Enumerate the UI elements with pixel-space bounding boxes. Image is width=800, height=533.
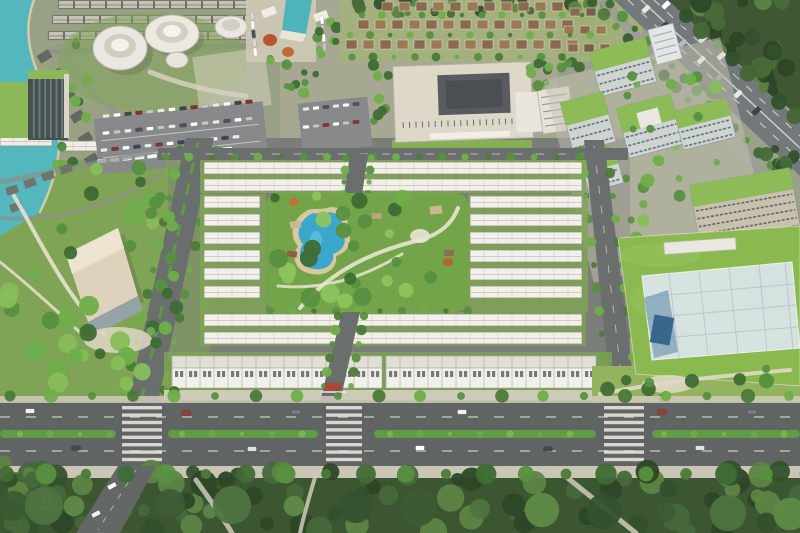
flame-tree [263,34,277,46]
dome-pavilion [166,52,188,68]
tower-roof-garden [28,70,68,79]
townhouse-row [204,286,260,298]
townhouse-row [204,162,582,174]
flame-tree [282,47,294,57]
gatehouse [325,383,341,391]
pavilion [430,205,443,214]
flame-tree [443,258,453,266]
townhouse-row [204,332,582,344]
aerial-masterplan-render [0,0,800,533]
townhouse-row [204,268,260,280]
townhouse-row [470,214,582,226]
school-roof-inner [446,79,503,109]
townhouse-row [204,250,260,262]
townhouse-row [470,196,582,208]
townhouse-row [204,196,260,208]
office-podium [0,82,30,138]
townhouse-row [204,232,260,244]
park-plaza [410,229,430,243]
median-hedge [374,430,596,438]
hall-core [111,39,129,52]
tower-white-band [64,74,69,138]
townhouse-row [204,179,582,191]
townhouse-row [470,232,582,244]
sidewalk [0,396,800,403]
townhouse-row [204,314,582,326]
round-pavilion-ring [222,19,240,31]
townhouse-row [470,268,582,280]
villa-row [382,2,563,11]
townhouse-row [204,214,260,226]
townhouse-row [470,286,582,298]
hall-core [163,25,181,37]
flame-tree [289,198,299,206]
pavilion [444,250,454,256]
house-row [58,0,250,9]
masterplan-aerial-svg [0,0,800,533]
pavilion [372,213,382,219]
shophouse-row [386,356,596,388]
townhouse-row [470,250,582,262]
